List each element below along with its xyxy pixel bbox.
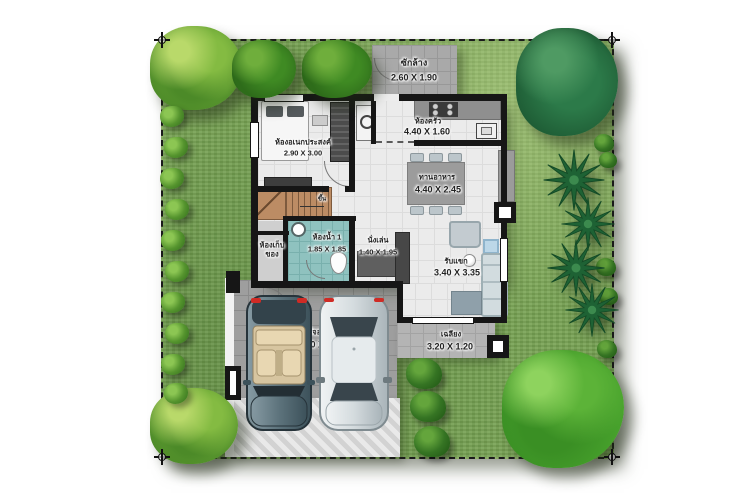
- room-dim-multipurpose: 2.90 X 3.00: [284, 148, 322, 157]
- stairs-direction-line: [300, 206, 324, 207]
- wall: [251, 231, 289, 235]
- room-label-sitting: นั่งเล่น: [367, 235, 388, 244]
- kitchen-sink: [476, 123, 497, 139]
- palm-tree: [564, 282, 620, 338]
- corner-marker-icon: [604, 449, 620, 465]
- room-dim-bathroom: 1.85 X 1.85: [308, 244, 346, 253]
- wall: [251, 281, 402, 288]
- door-opening: [374, 94, 399, 101]
- room-label-dining: ทานอาหาร: [419, 172, 455, 181]
- wall: [251, 186, 329, 192]
- car-convertible: [243, 292, 315, 434]
- column: [494, 202, 516, 223]
- shrub: [414, 426, 450, 457]
- site-plan-canvas: 1.50X0.5: [0, 0, 750, 500]
- wardrobe: [330, 102, 350, 162]
- window: [500, 238, 508, 282]
- room-label-living: รับแขก: [444, 256, 467, 265]
- column: [225, 366, 241, 400]
- room-label-laundry: ซักล้าง: [401, 57, 428, 68]
- wall: [371, 94, 376, 144]
- car-sedan: [316, 293, 392, 433]
- pillow: [266, 106, 283, 117]
- wall: [345, 186, 355, 192]
- room-label-kitchen: ห้องครัว: [415, 116, 441, 125]
- stairs-up-label: ขึ้น: [318, 196, 326, 204]
- wall: [283, 216, 356, 221]
- dining-chair: [410, 206, 424, 215]
- bathroom-sink: [291, 222, 306, 237]
- corner-marker-icon: [604, 32, 620, 48]
- tv-cabinet: [395, 232, 410, 284]
- room-dim-sitting: 1.40 X 1.95: [359, 247, 397, 256]
- dining-chair: [429, 153, 443, 162]
- corner-marker-icon: [154, 32, 170, 48]
- shrub: [410, 391, 446, 422]
- wall: [349, 216, 355, 283]
- room-dim-porch: 3.20 X 1.20: [427, 341, 473, 352]
- window: [250, 122, 259, 158]
- room-dim-laundry: 2.60 X 1.90: [391, 72, 437, 83]
- wall: [414, 140, 507, 146]
- dining-chair: [448, 206, 462, 215]
- room-label-storage: ห้องเก็บของ: [253, 241, 291, 260]
- window: [412, 317, 474, 324]
- wall: [349, 94, 355, 192]
- stove: [429, 102, 458, 117]
- coffee-table: [451, 291, 482, 315]
- armchair: [449, 221, 481, 248]
- corner-marker-icon: [154, 449, 170, 465]
- room-dim-living: 3.40 X 3.35: [434, 267, 480, 278]
- side-table: [312, 115, 328, 126]
- dining-chair: [410, 153, 424, 162]
- room-label-bathroom: ห้องน้ำ 1: [313, 232, 342, 241]
- column: [226, 271, 240, 293]
- porch-column: [487, 335, 509, 358]
- room-dim-kitchen: 4.40 X 1.60: [404, 126, 450, 137]
- room-label-porch: เฉลียง: [441, 329, 461, 338]
- dining-chair: [448, 153, 462, 162]
- pillow: [287, 106, 304, 117]
- shrub: [597, 340, 617, 358]
- room-dim-dining: 4.40 X 2.45: [415, 184, 461, 195]
- room-label-multipurpose: ห้องอเนกประสงค์: [275, 137, 331, 146]
- dining-chair: [429, 206, 443, 215]
- shrub: [406, 358, 442, 389]
- side-table: [483, 239, 499, 254]
- counter-pass-through: [376, 141, 414, 143]
